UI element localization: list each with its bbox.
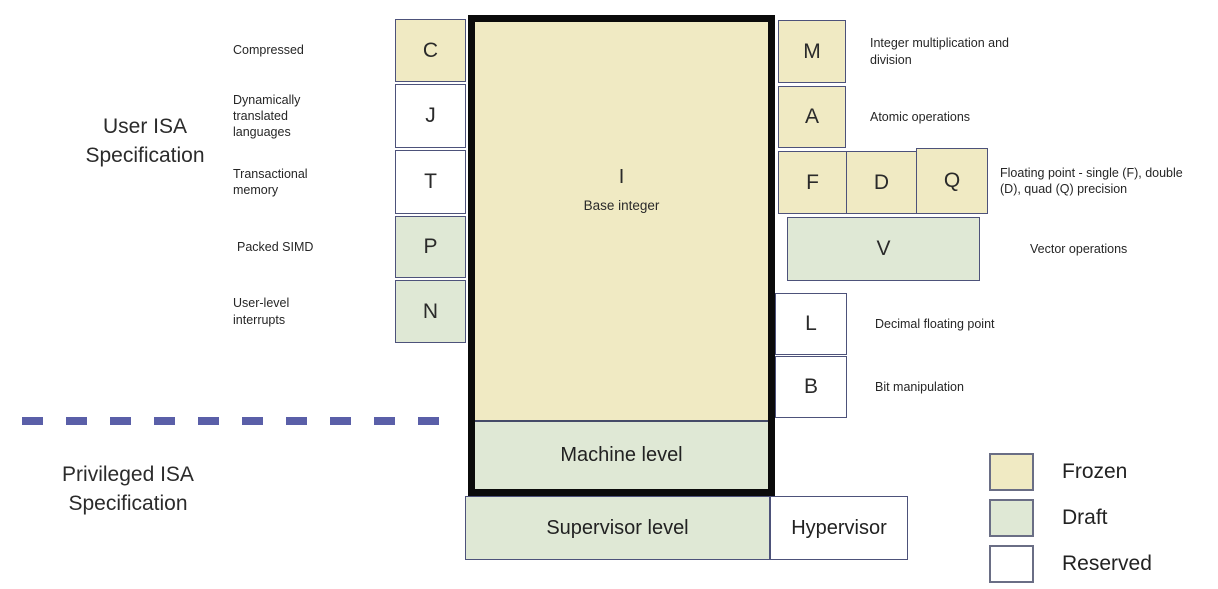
reserved-label: Reserved: [1062, 552, 1152, 576]
ext-box-j: J: [395, 84, 466, 148]
ext-box-d: D: [846, 151, 917, 214]
ext-box-m: M: [778, 20, 846, 83]
legend: Frozen Draft Reserved: [989, 453, 1152, 589]
hypervisor-box: Hypervisor: [770, 496, 908, 560]
ext-box-a: A: [778, 86, 846, 148]
base-integer-letter: I: [584, 166, 660, 189]
label-bit-manipulation: Bit manipulation: [875, 356, 1025, 418]
label-floating-point-fdq: Floating point - single (F), double (D),…: [1000, 148, 1185, 214]
ext-box-n: N: [395, 280, 466, 343]
legend-row-draft: Draft: [989, 499, 1152, 537]
machine-level-box: Machine level: [475, 420, 768, 489]
label-transactional-memory: Transactional memory: [233, 150, 328, 214]
ext-box-b: B: [775, 356, 847, 418]
label-compressed: Compressed: [233, 19, 358, 82]
ext-box-q: Q: [916, 148, 988, 214]
riscv-isa-diagram: User ISA Specification Privileged ISA Sp…: [0, 0, 1218, 589]
base-integer-label: Base integer: [584, 198, 660, 213]
label-packed-simd: Packed SIMD: [237, 216, 362, 278]
reserved-swatch: [989, 545, 1034, 583]
frozen-swatch: [989, 453, 1034, 491]
label-user-level-interrupts: User-level interrupts: [233, 280, 313, 343]
supervisor-level-box: Supervisor level: [465, 496, 770, 560]
ext-box-c: C: [395, 19, 466, 82]
label-decimal-floating-point: Decimal floating point: [875, 293, 1035, 355]
ext-box-v: V: [787, 217, 980, 281]
ext-box-t: T: [395, 150, 466, 214]
base-integer-box: I Base integer Machine level: [468, 15, 775, 496]
ext-box-l: L: [775, 293, 847, 355]
draft-label: Draft: [1062, 506, 1108, 530]
legend-row-frozen: Frozen: [989, 453, 1152, 491]
label-atomic-operations: Atomic operations: [870, 86, 1040, 148]
ext-box-f: F: [778, 151, 847, 214]
frozen-label: Frozen: [1062, 460, 1127, 484]
label-dynamically-translated: Dynamically translated languages: [233, 84, 313, 148]
label-integer-mul-div: Integer multiplication and division: [870, 20, 1030, 83]
privileged-isa-title: Privileged ISA Specification: [38, 460, 218, 519]
legend-row-reserved: Reserved: [989, 545, 1152, 583]
ext-box-p: P: [395, 216, 466, 278]
draft-swatch: [989, 499, 1034, 537]
base-integer-area: I Base integer: [475, 22, 768, 420]
user-isa-title: User ISA Specification: [60, 112, 230, 171]
label-vector-operations: Vector operations: [1030, 217, 1180, 281]
user-privileged-divider: [22, 417, 455, 425]
